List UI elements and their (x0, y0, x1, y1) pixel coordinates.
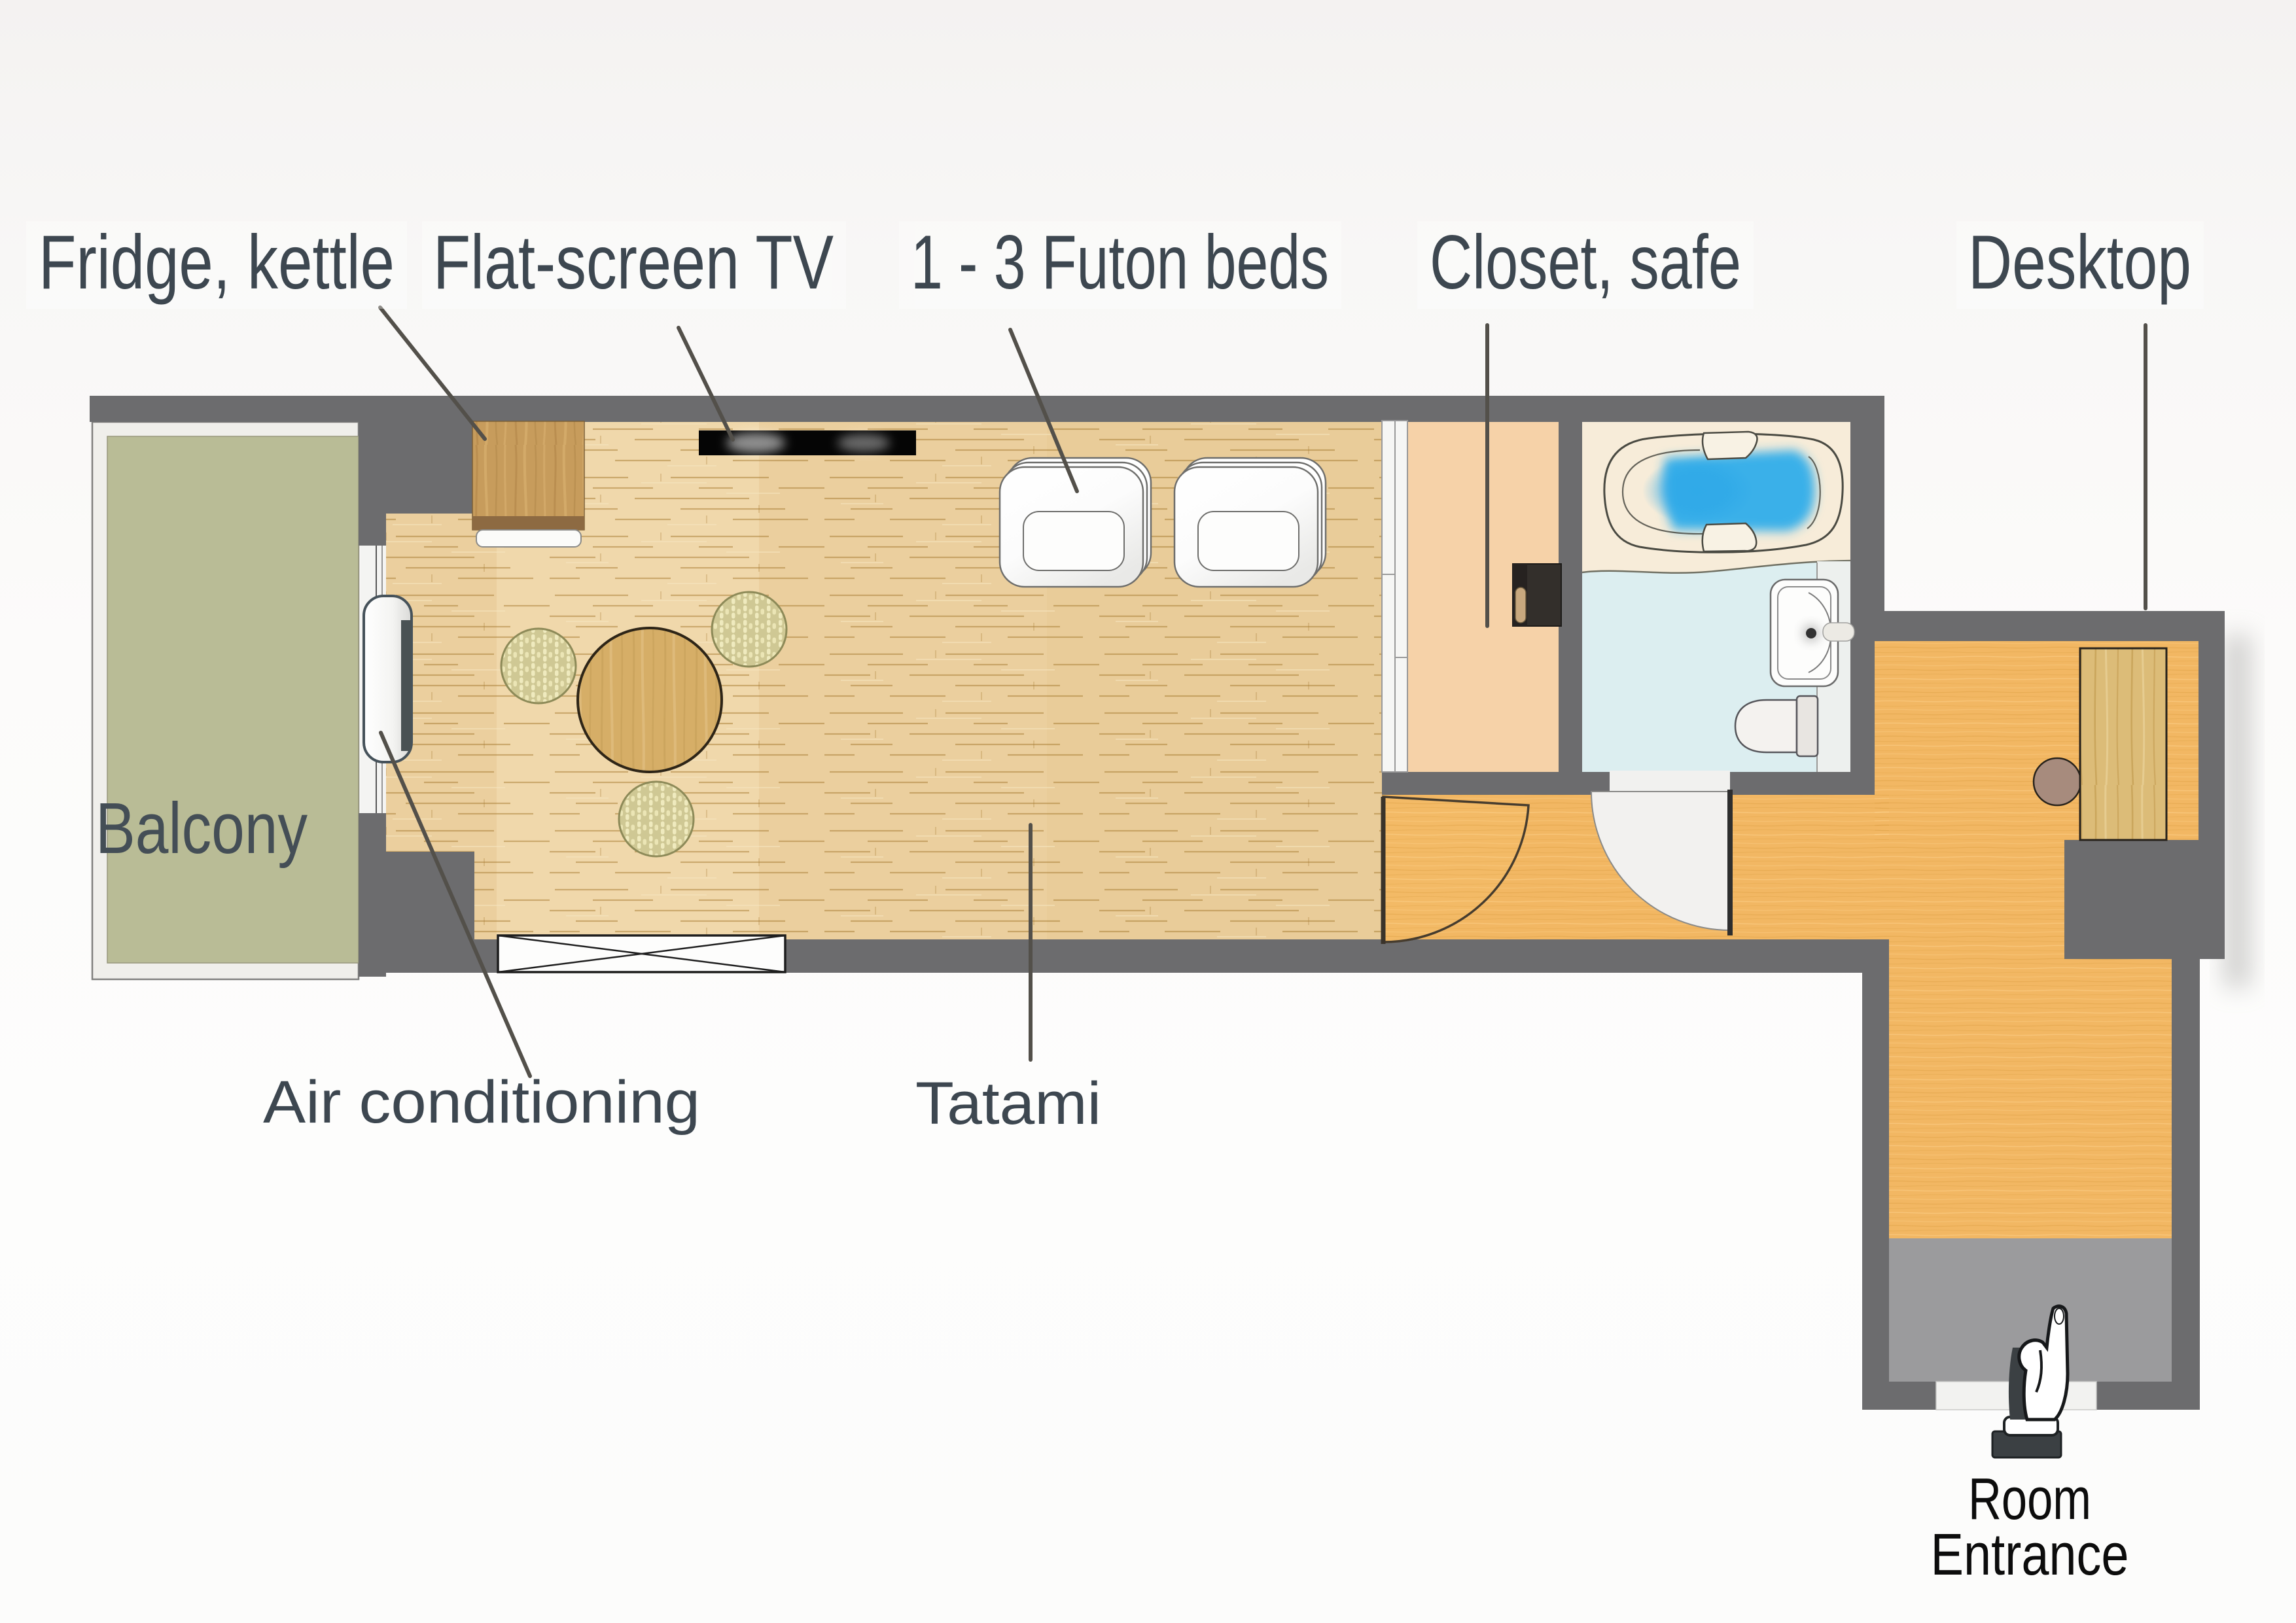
svg-text:Air conditioning: Air conditioning (263, 1069, 700, 1136)
svg-text:1 - 3 Futon beds: 1 - 3 Futon beds (911, 219, 1329, 305)
svg-text:Entrance: Entrance (1931, 1522, 2129, 1588)
svg-text:Flat-screen TV: Flat-screen TV (433, 219, 834, 305)
svg-text:Tatami: Tatami (915, 1070, 1101, 1137)
svg-text:Desktop: Desktop (1968, 219, 2191, 305)
svg-text:Fridge, kettle: Fridge, kettle (39, 219, 395, 305)
svg-text:Closet, safe: Closet, safe (1430, 219, 1741, 305)
svg-text:Balcony: Balcony (96, 788, 308, 869)
